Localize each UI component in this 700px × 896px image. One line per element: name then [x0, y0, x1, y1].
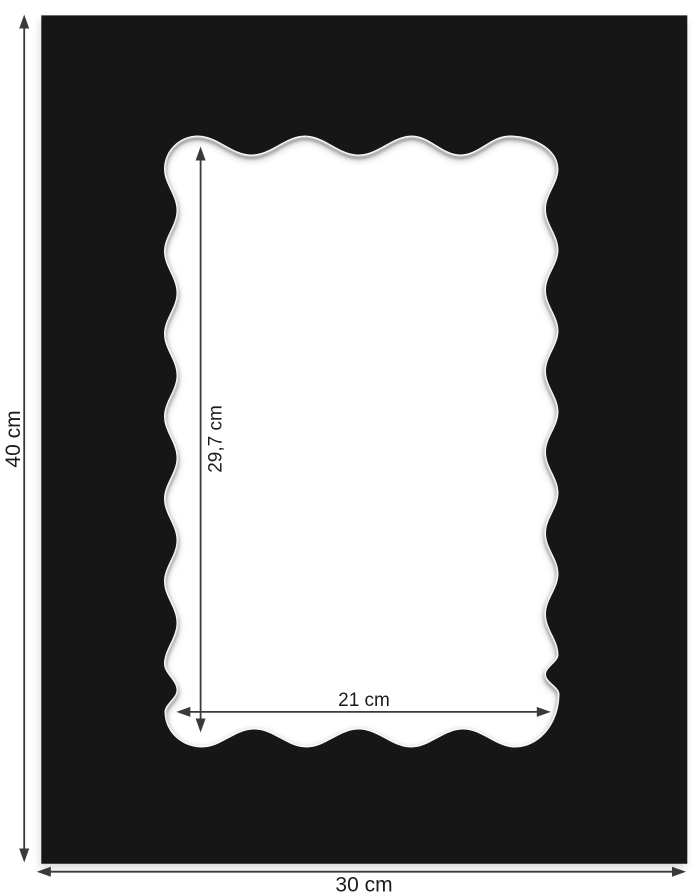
svg-text:21 cm: 21 cm	[338, 690, 390, 711]
svg-text:40 cm: 40 cm	[2, 410, 25, 467]
svg-text:30 cm: 30 cm	[335, 874, 392, 896]
svg-text:29,7 cm: 29,7 cm	[206, 405, 227, 473]
